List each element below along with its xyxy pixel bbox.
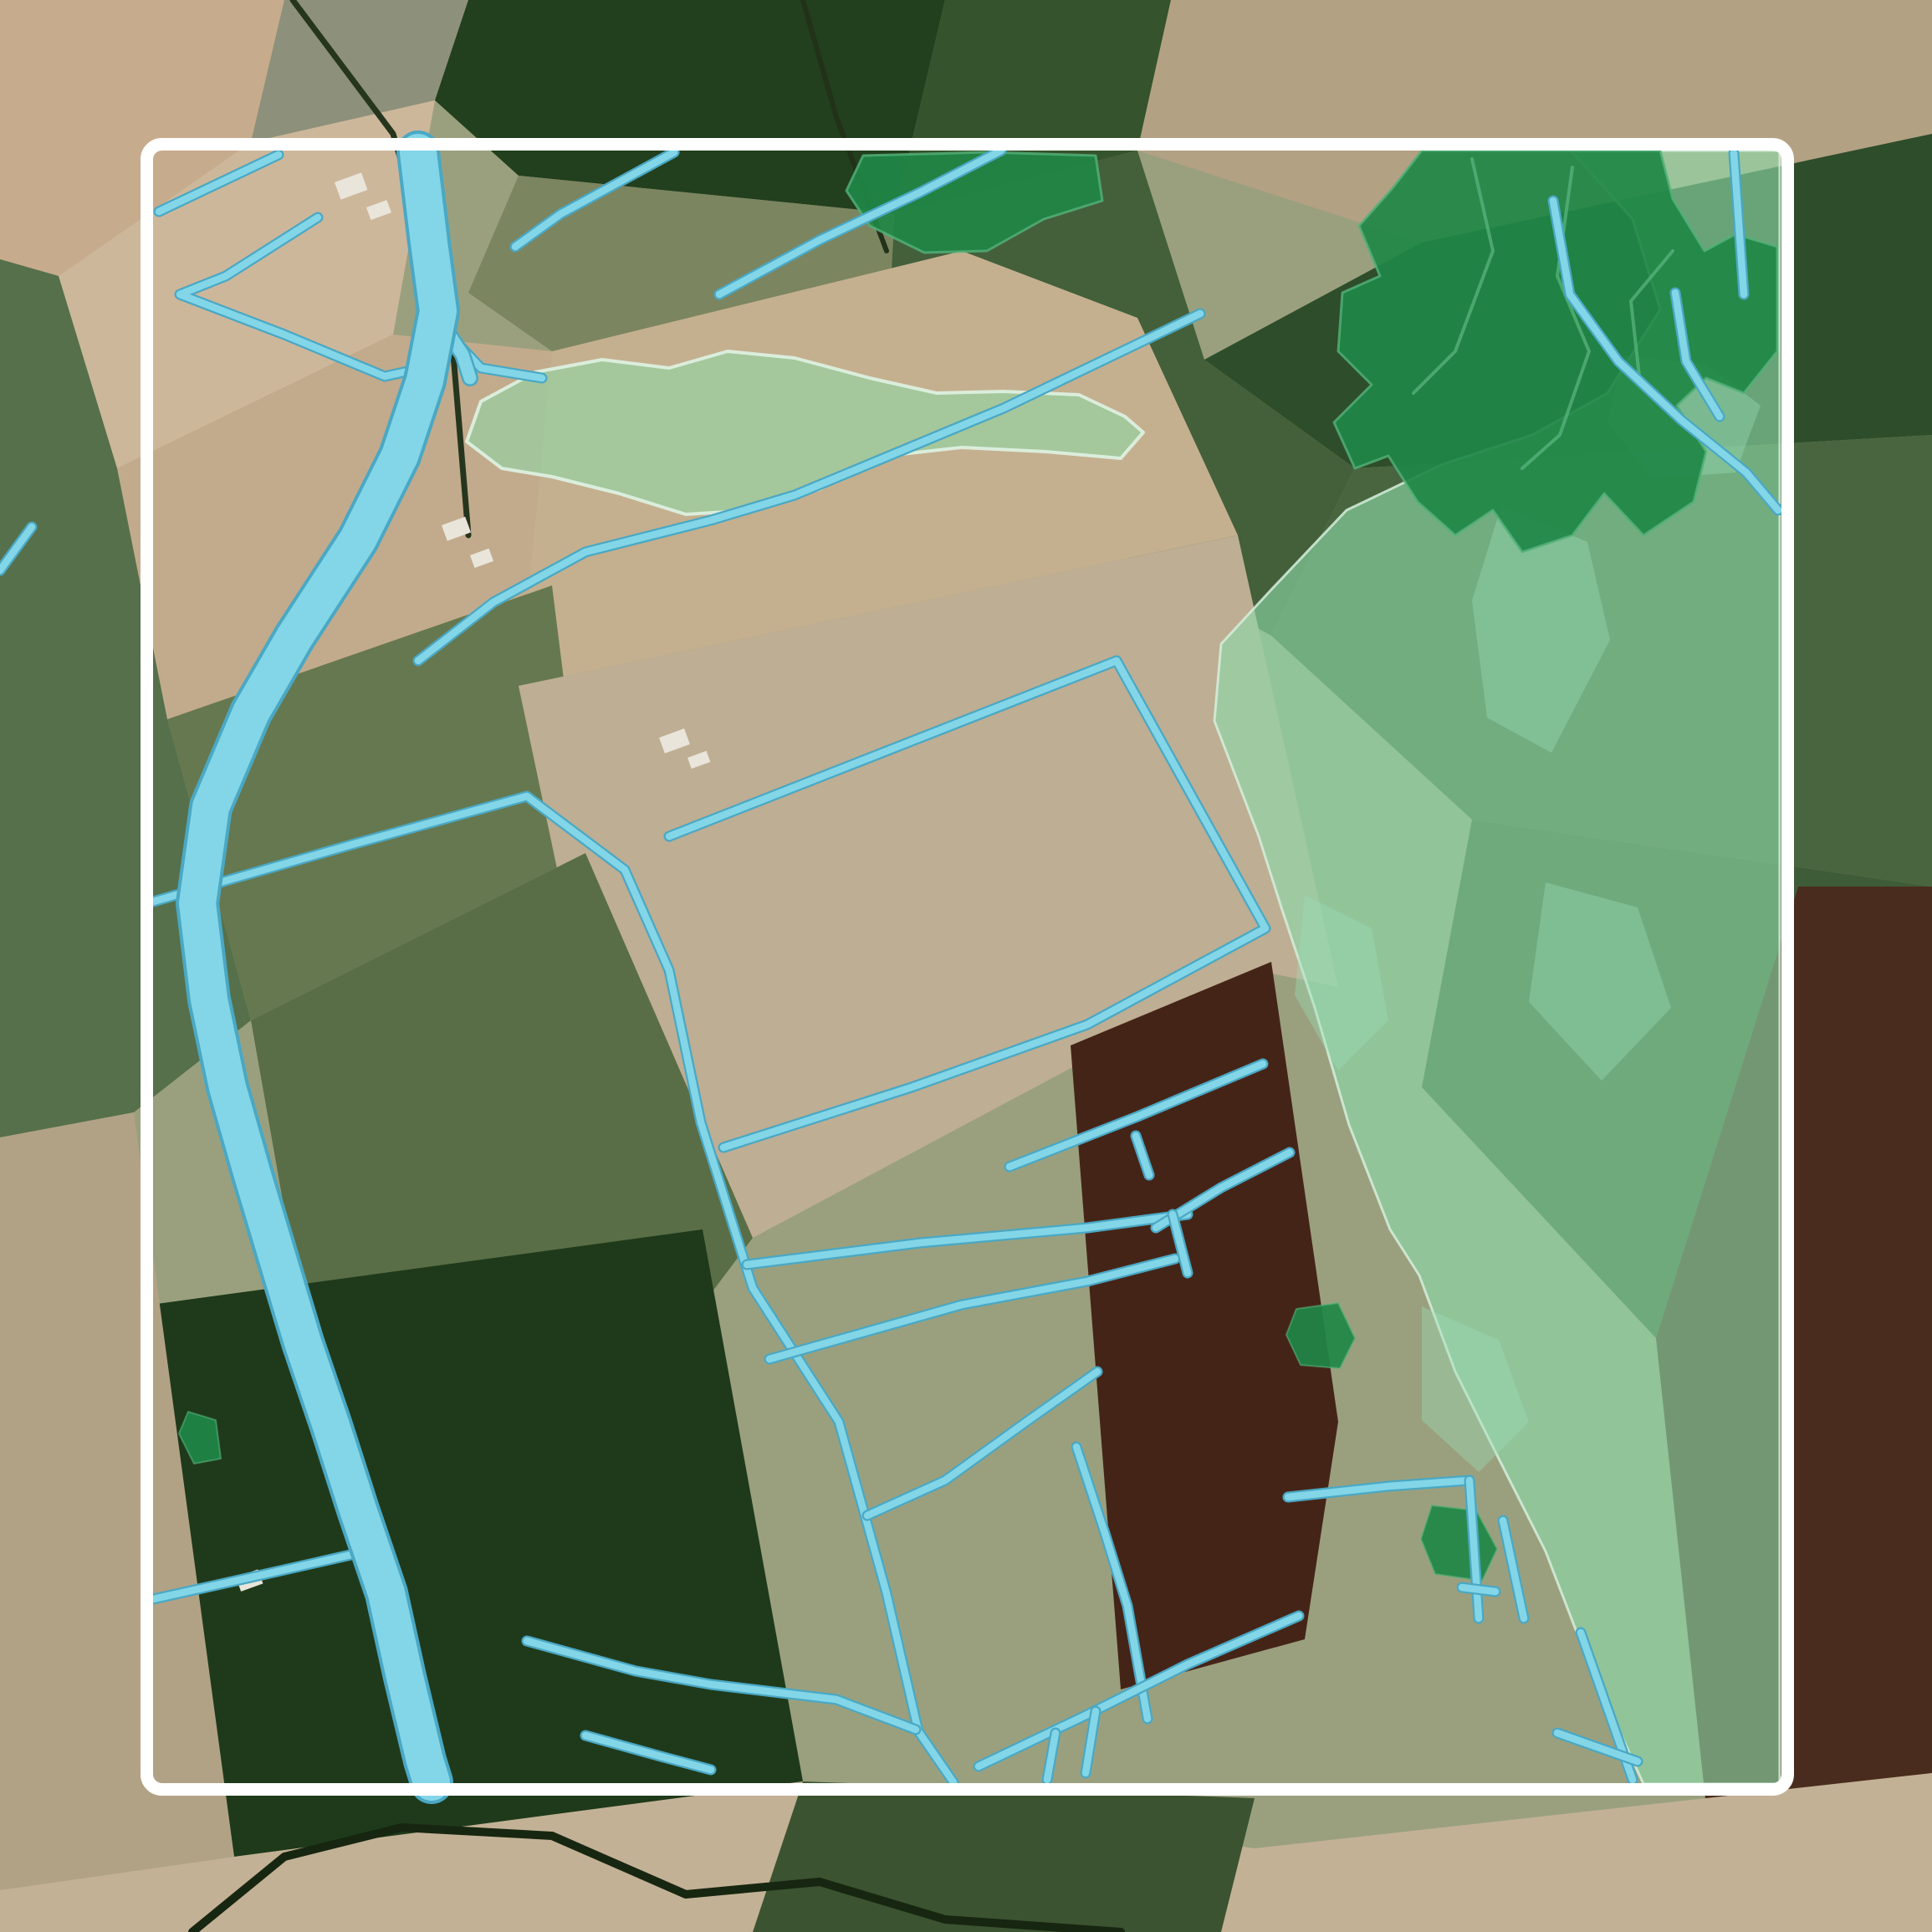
stream-br-tick	[1462, 1587, 1495, 1592]
field-bottom-green	[753, 1781, 1255, 1932]
map-canvas[interactable]	[0, 0, 1932, 1932]
map-viewport[interactable]	[0, 0, 1932, 1932]
